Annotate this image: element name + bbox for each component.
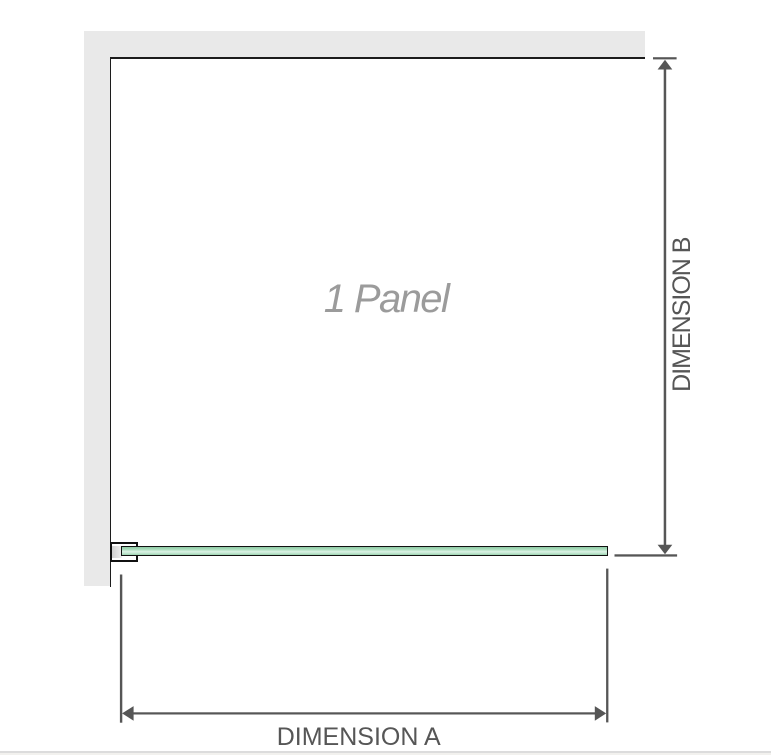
svg-text:DIMENSION B: DIMENSION B [668,237,696,392]
svg-text:DIMENSION A: DIMENSION A [277,723,441,751]
